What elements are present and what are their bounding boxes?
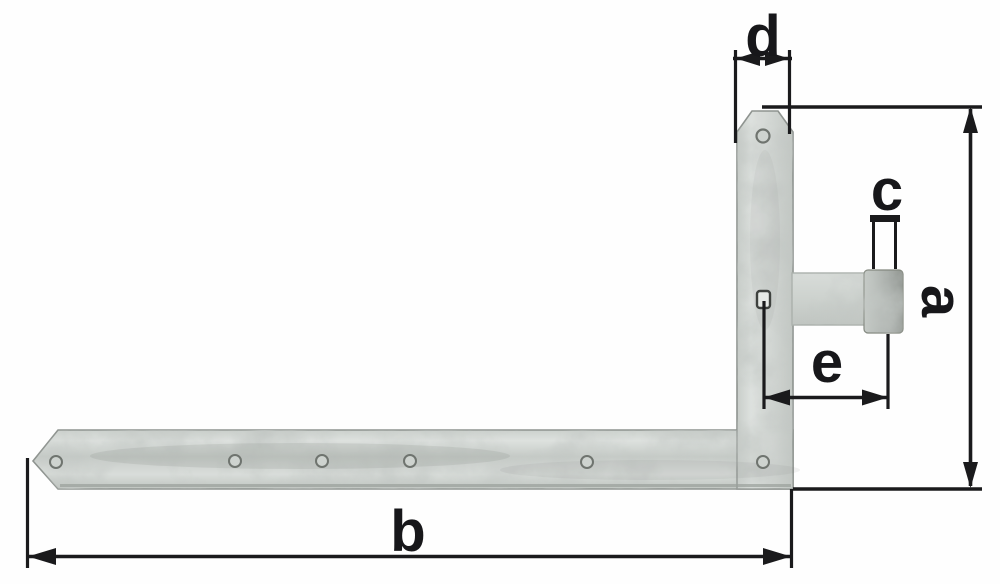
steel-smudge bbox=[500, 460, 800, 480]
b-arrow-right bbox=[763, 548, 791, 565]
e-arrow-right bbox=[862, 390, 888, 406]
strap-hole bbox=[50, 456, 62, 468]
a-arrow-up bbox=[963, 107, 978, 133]
dimension-label-e: e bbox=[811, 334, 843, 392]
strap-hole bbox=[757, 456, 769, 468]
strap-hole bbox=[404, 455, 416, 467]
dimension-label-b: b bbox=[390, 503, 425, 561]
dimension-label-d: d bbox=[745, 8, 780, 66]
dimension-label-a: a bbox=[912, 285, 970, 317]
steel-smudge bbox=[90, 443, 510, 469]
strap-hole bbox=[581, 456, 593, 468]
strap-hole bbox=[229, 455, 241, 467]
hinge-technical-drawing bbox=[0, 0, 1000, 584]
hinge-part bbox=[33, 111, 903, 489]
diagram-canvas: d c a e b bbox=[0, 0, 1000, 584]
a-arrow-down bbox=[963, 462, 978, 488]
b-arrow-left bbox=[28, 548, 56, 565]
dimension-label-c: c bbox=[871, 162, 903, 220]
dimension-c bbox=[870, 215, 900, 269]
strap-hole bbox=[316, 455, 328, 467]
strap-hole bbox=[757, 130, 770, 143]
